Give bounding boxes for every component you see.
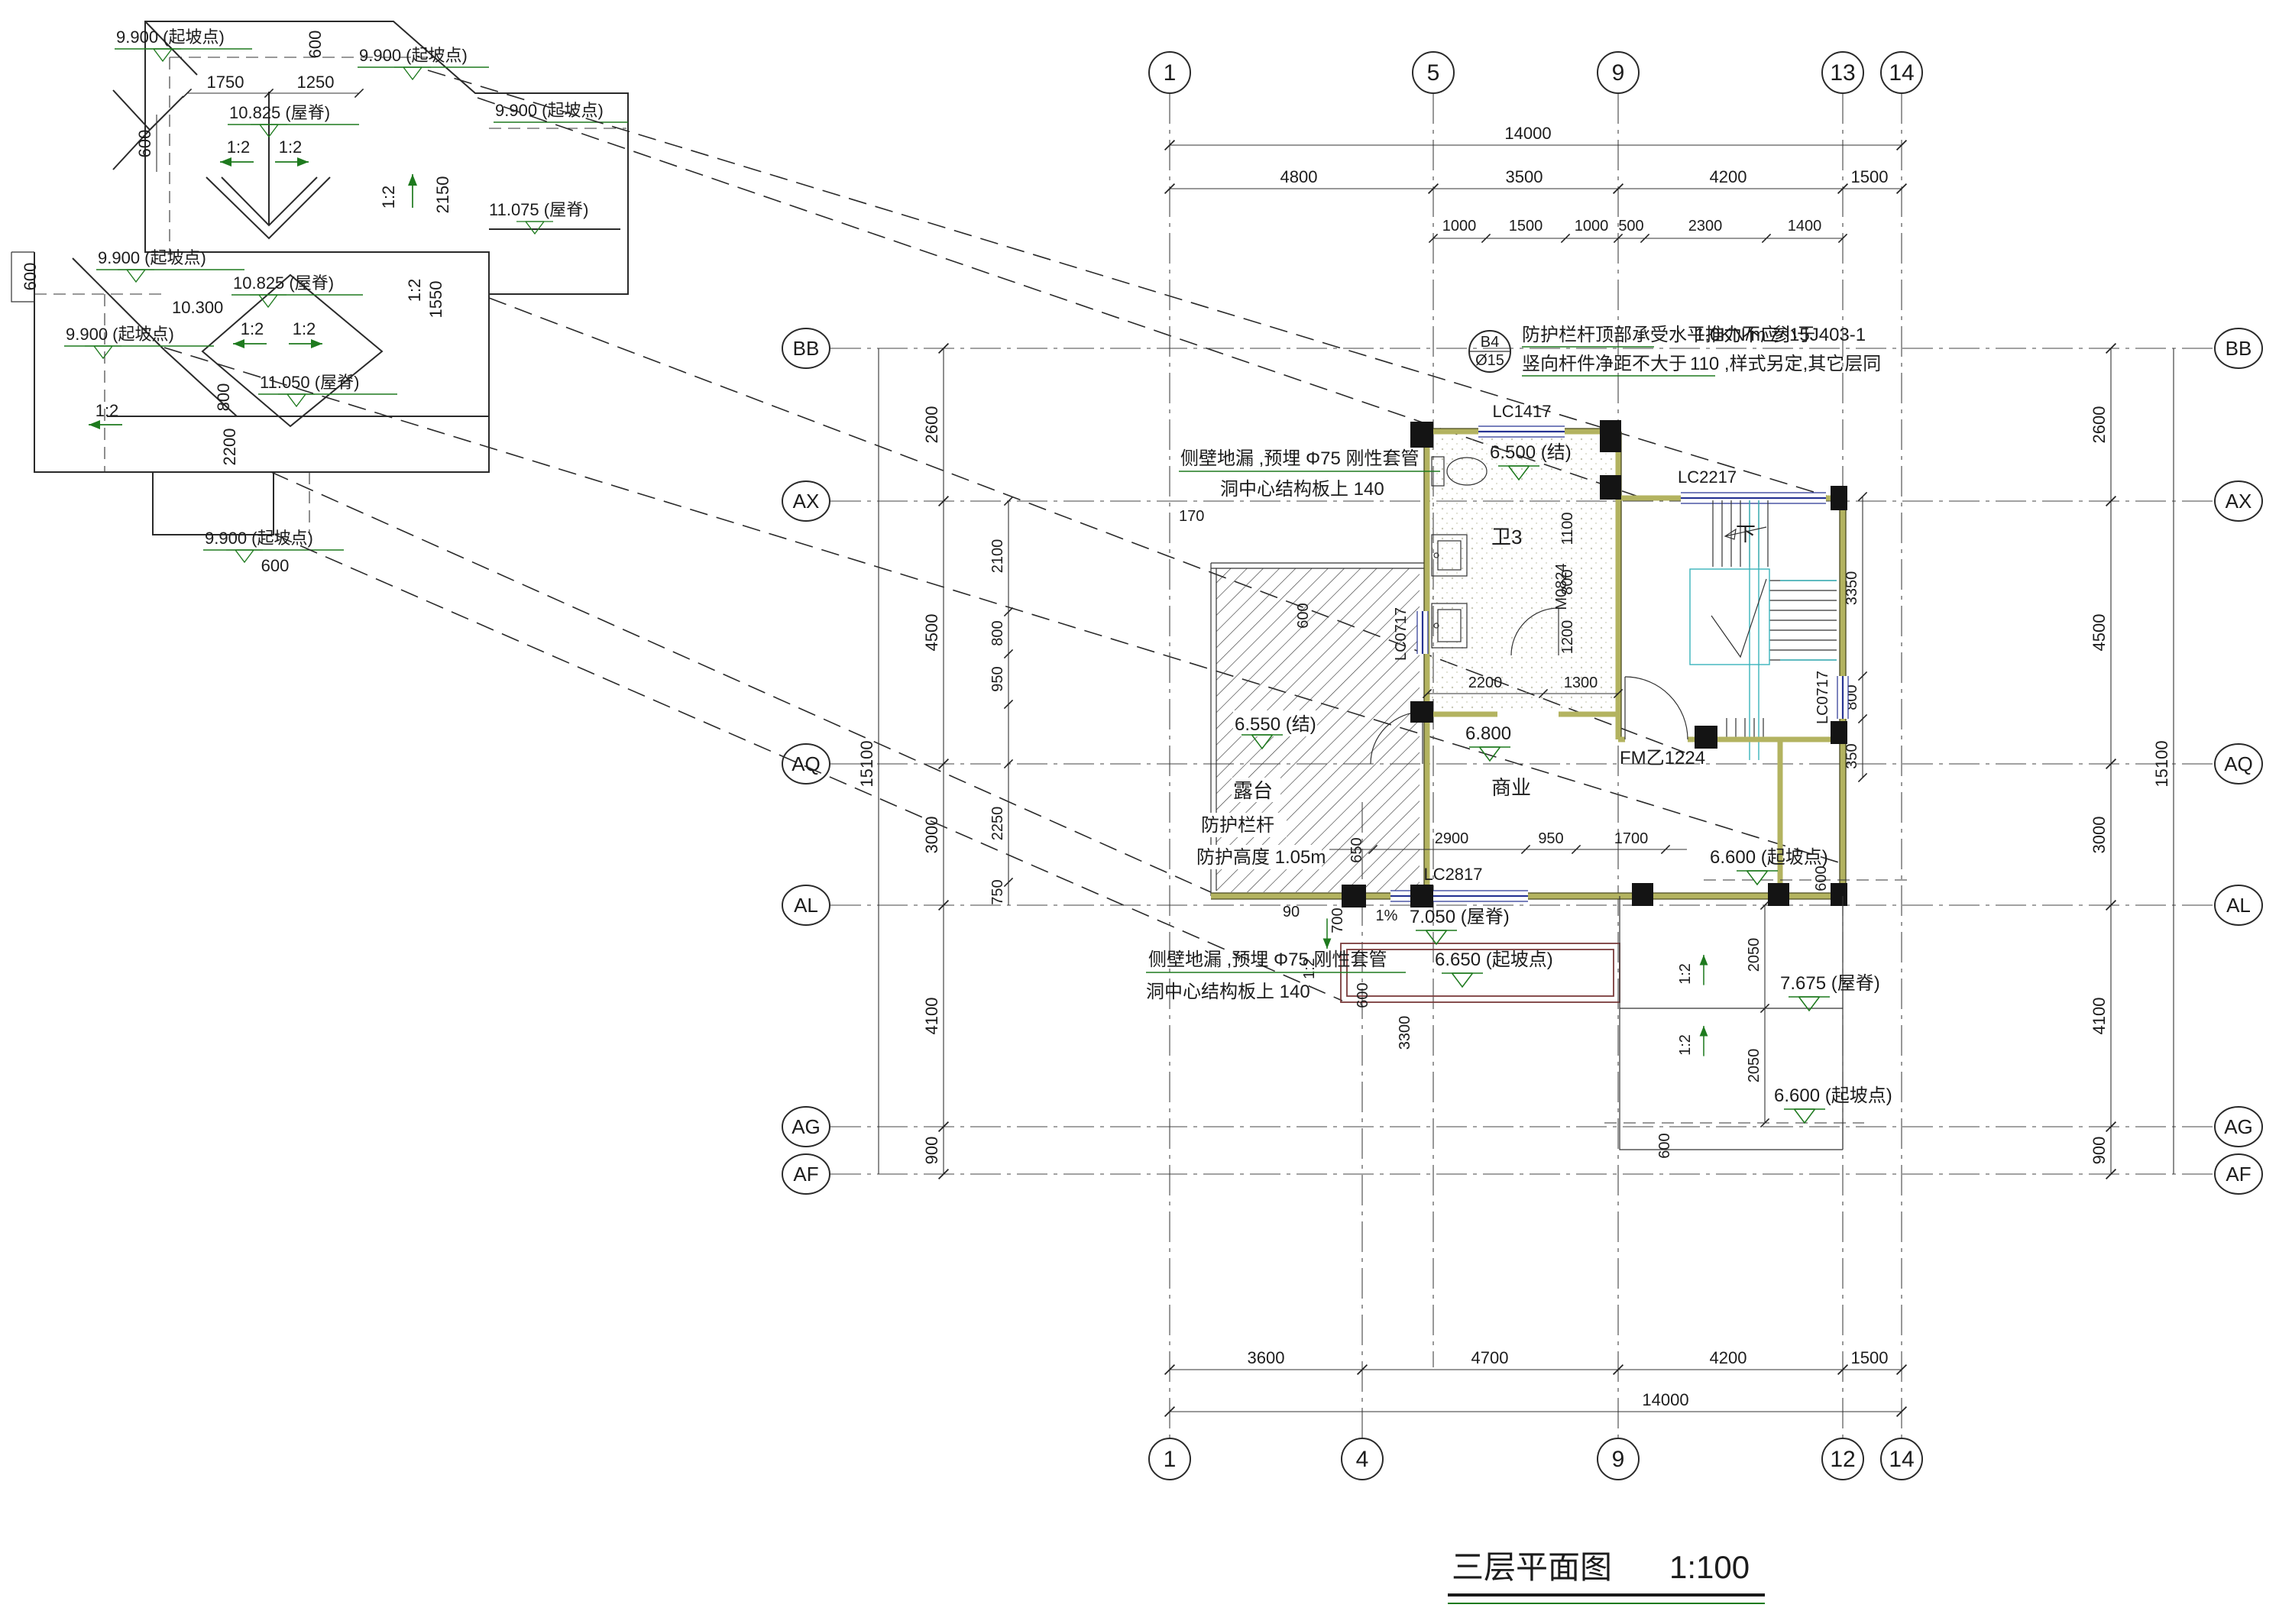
level-label: 9.900 (起坡点) <box>116 27 225 47</box>
dim-label: 4700 <box>1471 1348 1509 1367</box>
level-label: 9.900 (起坡点) <box>66 325 174 344</box>
grid-bubble-label: AL <box>2226 894 2251 917</box>
level-label: 9.900 (起坡点) <box>495 101 604 120</box>
terrace-room-label: 露台 <box>1233 779 1273 802</box>
grid-bubble-label: 1 <box>1164 60 1177 86</box>
dim-label: 3500 <box>1506 167 1543 186</box>
dim-label: 600 <box>261 556 290 575</box>
dim-label: 600 <box>135 130 154 158</box>
dim-label: 1750 <box>207 73 244 92</box>
grid-bubble-label: AF <box>2226 1163 2251 1186</box>
dim-label: 2050 <box>1746 1049 1763 1083</box>
detail-bubble-top: B4 <box>1481 334 1499 351</box>
roof-level-10825-b: 10.825 (屋脊) <box>231 273 363 307</box>
grid-bubble-label: AG <box>792 1115 821 1138</box>
grid-bubble-label: BB <box>2226 337 2252 360</box>
stair-down-label: 下 <box>1736 522 1756 545</box>
dim-label: 3000 <box>2090 817 2109 854</box>
level-label: 9.900 (起坡点) <box>98 248 206 267</box>
railing-note-1: 防护栏杆 <box>1201 815 1274 836</box>
grid-bubble-label: AQ <box>792 752 821 775</box>
dim-label: 4800 <box>1280 167 1318 186</box>
slope-label: 1:2 <box>279 137 303 157</box>
dim-label: 14000 <box>1642 1390 1688 1409</box>
roof-level-9900-c: 9.900 (起坡点) <box>494 101 628 122</box>
ridge-level-label: 7.050 (屋脊) <box>1410 907 1510 927</box>
cad-canvas: 9.900 (起坡点) 9.900 (起坡点) 9.900 (起坡点) 10.8… <box>0 0 2292 1620</box>
door-arc <box>1625 677 1688 739</box>
drain-note-line-2: 洞中心结构板上 140 <box>1146 982 1310 1002</box>
dim-label: 800 <box>989 620 1006 645</box>
roof-level-10300: 10.300 <box>172 298 223 317</box>
dim-label: 1250 <box>297 73 335 92</box>
dim-label: 4500 <box>2090 614 2109 652</box>
dim-label: 3000 <box>922 817 941 854</box>
note-line-1-value: 1.0KN/m 参15J403-1 <box>1695 325 1866 345</box>
dim-label: 15100 <box>857 740 876 787</box>
grid-bubble-label: 14 <box>1889 60 1914 86</box>
drawing-scale: 1:100 <box>1669 1549 1750 1585</box>
dim-label: 1550 <box>426 281 445 319</box>
staircase: LC2217 LC0717 下 <box>1618 467 1848 896</box>
railing-note-2: 防护高度 1.05m <box>1196 847 1326 868</box>
bathroom-room-label: 卫3 <box>1491 526 1522 548</box>
dim-label: 2300 <box>1688 218 1723 235</box>
window-label: LC0717 <box>1814 671 1831 724</box>
roof-level-9900-d: 9.900 (起坡点) <box>96 248 244 282</box>
drain-note-line-1: 侧壁地漏 ,预埋 Φ75 刚性套管 <box>1148 949 1387 970</box>
dim-label: 2050 <box>1746 938 1763 972</box>
dim-label: 600 <box>1656 1133 1673 1158</box>
drawing-title: 三层平面图 <box>1452 1549 1612 1585</box>
dim-label: 1400 <box>1788 218 1822 235</box>
dim-label: 4200 <box>1710 1348 1747 1367</box>
grid-bubble-label: AX <box>2226 490 2252 513</box>
dim-label: 600 <box>1355 982 1371 1008</box>
dim-label: 2200 <box>1468 675 1503 691</box>
slope-percent-label: 1% <box>1376 907 1398 924</box>
dim-label: 1000 <box>1575 218 1609 235</box>
grid-bubble-label: BB <box>793 337 820 360</box>
window-label: LC2817 <box>1423 865 1482 884</box>
dim-label: 800 <box>1559 569 1576 594</box>
dim-label: 1700 <box>1614 830 1649 847</box>
level-label: 10.300 <box>172 298 223 317</box>
grid-bubble-label: 5 <box>1427 60 1440 86</box>
grid-bubble-label: 9 <box>1612 60 1625 86</box>
dim-label: 500 <box>1618 218 1643 235</box>
dim-label: 4100 <box>922 998 941 1035</box>
note-line-2: 竖向杆件净距不大于 <box>1522 354 1687 374</box>
dim-label: 1500 <box>1509 218 1543 235</box>
level-label: 10.825 (屋脊) <box>233 273 334 293</box>
window-label: LC1417 <box>1492 402 1551 421</box>
window-label: LC2217 <box>1678 467 1737 487</box>
slope-label: 1:2 <box>241 319 264 338</box>
dim-label: 1200 <box>1559 620 1576 655</box>
dim-label: 4200 <box>1710 167 1747 186</box>
commercial-level-label: 6.800 <box>1465 723 1511 744</box>
slope-label: 1:2 <box>1677 963 1694 985</box>
roof-level-9900-b: 9.900 (起坡点) <box>358 46 489 79</box>
roof-level-11050: 11.050 (屋脊) <box>258 373 397 406</box>
slope-label: 1:2 <box>1677 1034 1694 1056</box>
grid-bubble-label: AX <box>793 490 820 513</box>
awning-roof: 6.650 (起坡点) 1:2 600 3300 1% 7.050 (屋脊) 9… <box>1283 904 1620 1050</box>
dim-label: 1300 <box>1564 675 1598 691</box>
grid-bubble-label: 14 <box>1889 1447 1914 1472</box>
level-label: 10.825 (屋脊) <box>229 103 330 122</box>
dim-label: 3300 <box>1397 1016 1413 1050</box>
grid-bubble-label: 12 <box>1830 1447 1855 1472</box>
drain-note-upper: 侧壁地漏 ,预埋 Φ75 刚性套管 洞中心结构板上 140 170 <box>1179 448 1440 525</box>
roof-level-9900-a: 9.900 (起坡点) <box>115 27 252 61</box>
note-line-2-value: 110 ,样式另定,其它层同 <box>1690 354 1881 374</box>
dim-label: 750 <box>989 879 1006 904</box>
dim-label: 2200 <box>220 429 239 466</box>
dim-label: 2150 <box>433 176 452 214</box>
level-label: 11.075 (屋脊) <box>489 200 588 219</box>
grid-bubble-label: 1 <box>1164 1447 1177 1472</box>
dim-label: 950 <box>1538 830 1563 847</box>
bathroom: M0824 卫3 6.500 (结) 1100 800 1200 1200 <box>1424 429 1627 896</box>
dim-label: 2600 <box>922 406 941 444</box>
dim-label: 1100 <box>1559 512 1576 545</box>
terrace-level-label: 6.550 (结) <box>1235 714 1316 735</box>
dim-label: 90 <box>1283 904 1300 920</box>
grid-bubble-label: AG <box>2224 1115 2253 1138</box>
window-lc1417: LC1417 <box>1478 402 1565 437</box>
dim-label: 900 <box>2090 1137 2109 1165</box>
dim-label: 3600 <box>1248 1348 1285 1367</box>
dim-label: 2250 <box>989 807 1006 841</box>
dim-label: 4100 <box>2090 998 2109 1035</box>
grid-bubble-label: AQ <box>2224 752 2253 775</box>
dimension-chains: 14000 4800 3500 4200 1500 1000 1500 1000… <box>857 124 2174 1416</box>
dim-label: 2900 <box>1435 830 1469 847</box>
drawing-sheet: 9.900 (起坡点) 9.900 (起坡点) 9.900 (起坡点) 10.8… <box>0 0 2292 1620</box>
roof-level-10825-a: 10.825 (屋脊) <box>228 103 359 137</box>
level-label: 11.050 (屋脊) <box>260 373 359 392</box>
dim-label: 600 <box>1295 603 1312 628</box>
dim-label: 700 <box>1329 907 1346 933</box>
dim-label: 600 <box>1813 865 1830 891</box>
grid-lines <box>830 93 2215 1438</box>
grid-bubble-label: 13 <box>1830 60 1855 86</box>
slope-label: 1:2 <box>293 319 316 338</box>
dim-label: 1500 <box>1851 167 1889 186</box>
level-label: 9.900 (起坡点) <box>359 46 468 65</box>
roof-level-label: 7.675 (屋脊) <box>1780 973 1880 994</box>
dim-label: 1500 <box>1851 1348 1889 1367</box>
title-block: 三层平面图 1:100 <box>1448 1549 1765 1603</box>
slope-label: 1:2 <box>227 137 251 157</box>
stair-landing <box>1690 569 1769 665</box>
dim-label: 650 <box>1348 837 1365 862</box>
grid-bubble-label: 4 <box>1356 1447 1369 1472</box>
slope-label: 1:2 <box>379 186 398 209</box>
dim-label: 4500 <box>922 614 941 652</box>
door-label: FM乙1224 <box>1620 748 1705 768</box>
dim-label: 2600 <box>2090 406 2109 444</box>
railing-note: B4 Ø15 防护栏杆顶部承受水平推力不应小于 1.0KN/m 参15J403-… <box>1469 325 1881 376</box>
roof-plan: 9.900 (起坡点) 9.900 (起坡点) 9.900 (起坡点) 10.8… <box>11 21 628 575</box>
dim-label: 900 <box>922 1137 941 1165</box>
grid-bubble-label: AF <box>793 1163 818 1186</box>
roof-level-label: 6.600 (起坡点) <box>1774 1085 1892 1106</box>
level-label: 9.900 (起坡点) <box>205 529 313 548</box>
window-label: LC0717 <box>1393 607 1410 661</box>
awning-level-label: 6.650 (起坡点) <box>1435 949 1553 970</box>
dim-label: 14000 <box>1504 124 1551 143</box>
slope-label: 1:2 <box>405 279 424 302</box>
dim-label: 800 <box>214 383 233 412</box>
dim-label: 15100 <box>2152 740 2171 787</box>
dim-label: 2100 <box>989 539 1006 574</box>
commercial-room-label: 商业 <box>1491 776 1531 799</box>
roof-level-9900-e: 9.900 (起坡点) <box>64 325 214 358</box>
grid-bubble-label: AL <box>794 894 818 917</box>
dim-label: 1000 <box>1442 218 1477 235</box>
drain-note-line-2: 洞中心结构板上 140 <box>1220 479 1384 500</box>
dim-label: 950 <box>989 666 1006 691</box>
grid-bubble-label: 9 <box>1612 1447 1625 1472</box>
dim-label: 170 <box>1179 508 1204 525</box>
slope-label: 1:2 <box>95 401 119 420</box>
drain-note-line-1: 侧壁地漏 ,预埋 Φ75 刚性套管 <box>1180 448 1420 469</box>
dim-label: 600 <box>306 31 325 59</box>
detail-bubble-bottom: Ø15 <box>1475 352 1504 369</box>
bathroom-floor <box>1432 437 1614 709</box>
roof-level-label: 6.600 (起坡点) <box>1710 847 1828 868</box>
bathroom-level-label: 6.500 (结) <box>1490 442 1572 463</box>
grid-bubbles: 1 5 9 13 14 1 4 9 12 14 BB AX AQ AL AG A… <box>782 52 2262 1480</box>
dim-label: 600 <box>21 263 40 291</box>
